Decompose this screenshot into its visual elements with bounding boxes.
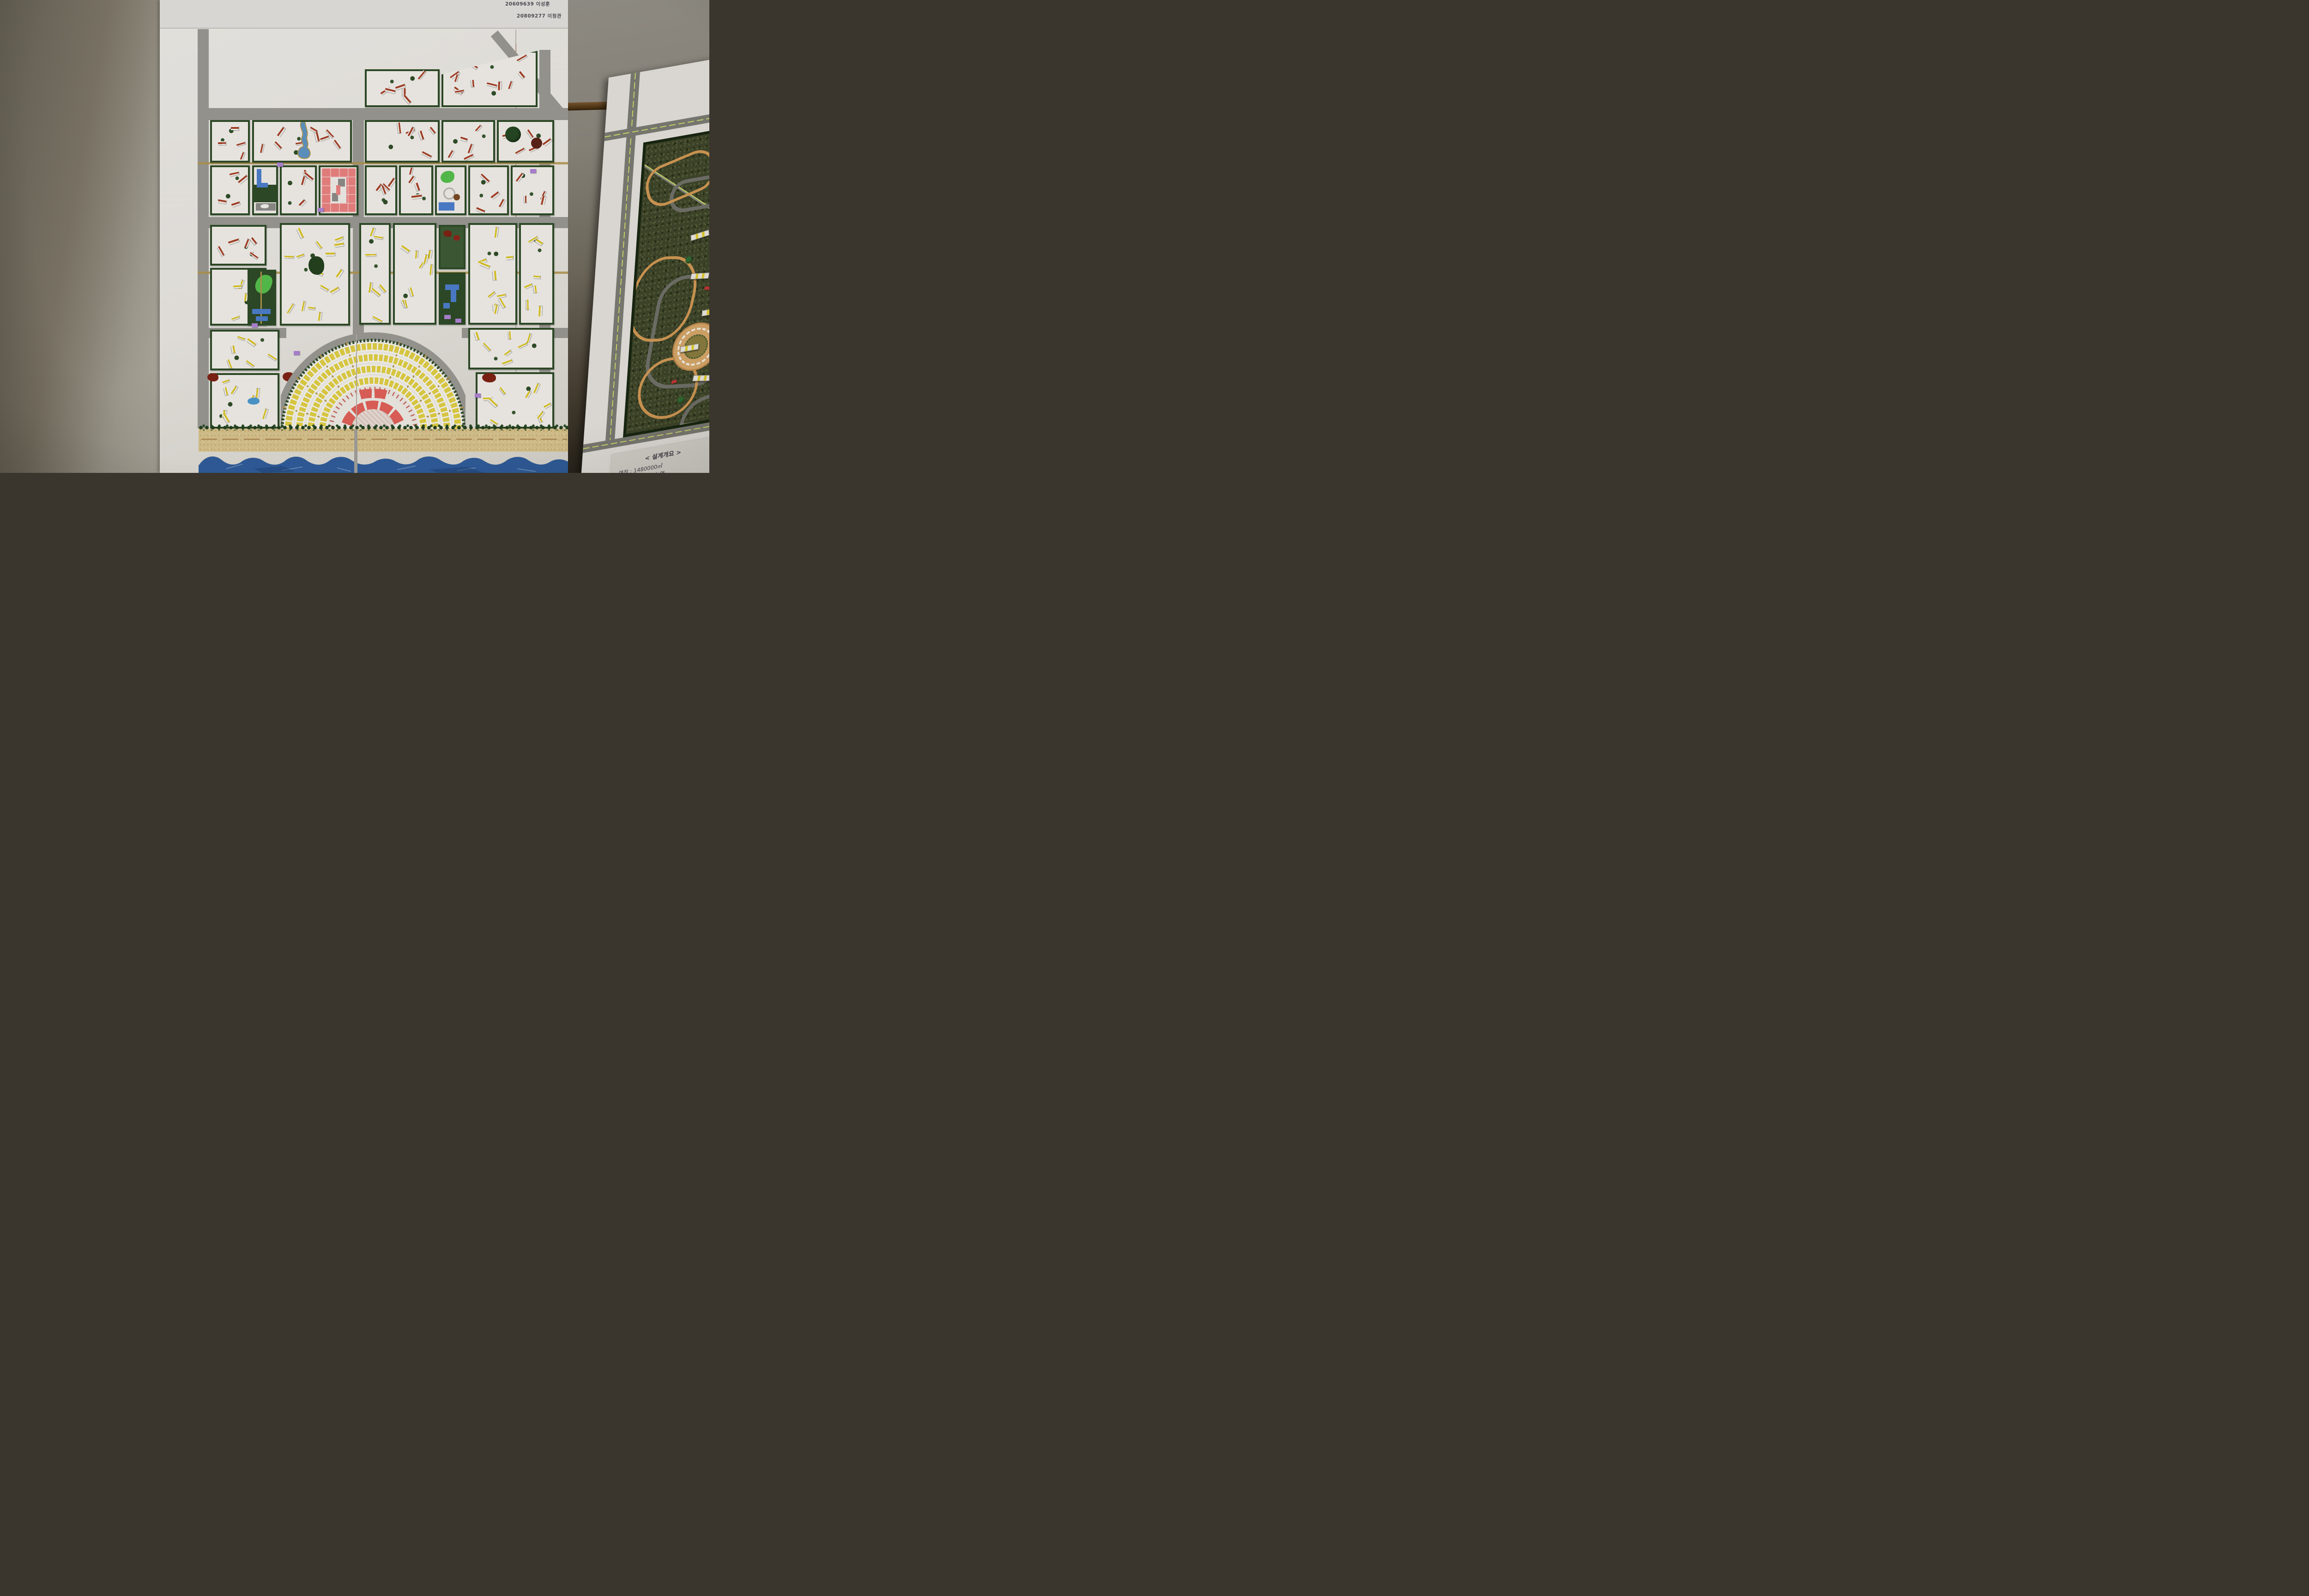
rb-apartment-building: [692, 375, 709, 381]
city-block-res: [468, 328, 554, 369]
model-house-yellow: [400, 244, 411, 253]
maroon-garden: [443, 230, 452, 237]
big-tree: [505, 127, 521, 142]
park-green-blob: [441, 171, 454, 183]
model-house-yellow: [261, 409, 268, 419]
model-house-red: [231, 201, 240, 207]
model-house-red: [487, 81, 498, 87]
purple-building: [444, 315, 451, 319]
model-house-yellow: [227, 359, 233, 369]
fan-red-top-piece-right: [375, 393, 386, 395]
maroon-garden-blob: [207, 373, 218, 381]
model-house-red: [518, 70, 526, 79]
model-house-yellow: [409, 287, 415, 297]
model-house-yellow: [533, 285, 538, 293]
model-house-yellow: [320, 284, 329, 291]
model-house-yellow: [230, 386, 238, 395]
city-block-res: [359, 223, 391, 325]
model-house-red: [415, 182, 421, 191]
city-block-river: [252, 120, 352, 163]
model-house-red: [408, 167, 413, 175]
model-house-yellow: [487, 291, 495, 298]
purple-building: [530, 169, 536, 173]
model-house-red: [397, 122, 402, 133]
courtyard-building-pink: [336, 185, 340, 195]
model-house-yellow: [233, 284, 242, 289]
purple-building: [475, 393, 481, 398]
city-block-slant: [441, 51, 538, 107]
model-house-red: [403, 94, 412, 104]
model-house-yellow: [335, 236, 344, 242]
blue-building: [445, 284, 459, 290]
model-house-yellow: [222, 379, 230, 384]
blue-building: [451, 290, 456, 302]
model-house-yellow: [231, 315, 239, 320]
model-house-yellow: [526, 334, 532, 344]
model-house-yellow: [508, 331, 512, 339]
pink-courtyard: [331, 177, 346, 203]
pond: [248, 398, 260, 405]
model-house-red: [243, 239, 250, 248]
model-house-red: [542, 138, 551, 146]
purple-building: [277, 163, 283, 167]
model-house-red: [471, 80, 475, 87]
model-house-yellow: [335, 269, 343, 278]
city-block-res: [210, 120, 250, 163]
model-house-yellow: [334, 242, 344, 247]
city-block-res: [399, 165, 433, 215]
model-house-yellow: [315, 240, 323, 249]
city-block-res: [468, 165, 509, 215]
model-house-yellow: [493, 271, 497, 280]
model-house-red: [259, 144, 264, 153]
model-house-yellow: [223, 413, 230, 423]
model-house-red: [230, 171, 239, 176]
beach-hedge: [199, 424, 568, 430]
model-house-yellow: [296, 253, 304, 258]
model-house-yellow: [504, 349, 512, 357]
city-block-trees: [497, 120, 554, 163]
whale-motif: [260, 204, 269, 208]
rb-model-area: [623, 116, 709, 438]
rb-tree: [677, 396, 685, 404]
model-house-yellow: [533, 275, 541, 279]
model-house-red: [516, 54, 527, 62]
model-house-red: [417, 70, 426, 80]
model-house-yellow: [317, 313, 322, 321]
city-block-parkE: [439, 225, 465, 269]
beach-sand: [199, 429, 568, 452]
city-block-res: [519, 223, 554, 325]
model-house-red: [490, 191, 499, 199]
purple-building: [318, 208, 324, 212]
rb-apartment-building: [690, 230, 709, 241]
model-house-yellow: [246, 359, 255, 367]
model-house-yellow: [423, 254, 429, 264]
model-house-red: [429, 126, 436, 134]
blue-pool: [439, 202, 454, 211]
city-block-res: [441, 120, 495, 163]
model-house-red: [218, 141, 226, 145]
model-house-yellow: [499, 387, 506, 395]
blue-building: [252, 309, 271, 314]
model-house-yellow: [297, 227, 305, 238]
maroon-garden: [453, 235, 460, 241]
city-block-pink: [319, 165, 358, 215]
beach-tide-line: [201, 439, 567, 440]
model-house-yellow: [284, 254, 294, 258]
model-house-yellow: [371, 287, 381, 297]
model-house-yellow: [286, 303, 295, 314]
rb-apartment-building: [701, 307, 709, 316]
city-block-res: [393, 223, 436, 325]
model-house-red: [419, 130, 425, 139]
model-house-red: [411, 193, 422, 199]
city-block-res: [365, 165, 397, 215]
commercial-pink-complex: [321, 168, 356, 212]
fan-red-top-piece-left: [360, 393, 372, 395]
model-house-yellow: [526, 300, 530, 310]
purple-building: [252, 323, 258, 327]
model-house-yellow: [329, 286, 339, 294]
model-house-red: [236, 141, 246, 147]
model-house-red: [514, 147, 525, 155]
amphitheater-district: [281, 329, 465, 431]
model-house-red: [467, 144, 474, 154]
model-house-red: [480, 173, 490, 183]
model-house-red: [231, 126, 239, 130]
model-house-red: [239, 152, 245, 160]
model-house-red: [218, 199, 226, 204]
city-block-parkC: [248, 270, 276, 326]
model-house-yellow: [308, 306, 315, 310]
model-house-red: [460, 136, 468, 142]
model-house-yellow: [493, 227, 498, 237]
rb-buildings-layer: [626, 118, 709, 438]
model-house-red: [463, 153, 473, 161]
model-house-yellow: [224, 387, 229, 395]
model-house-yellow: [378, 284, 387, 293]
model-house-yellow: [300, 301, 305, 311]
city-block-res: [280, 165, 317, 215]
model-house-yellow: [246, 337, 256, 346]
model-house-red: [526, 129, 534, 138]
city-block-res: [210, 330, 279, 370]
model-house-yellow: [488, 398, 498, 407]
sea-water: [199, 450, 568, 473]
model-house-yellow: [365, 253, 376, 256]
model-house-yellow: [502, 358, 512, 365]
model-house-red: [274, 140, 283, 149]
model-house-yellow: [524, 390, 531, 399]
model-house-red: [407, 175, 415, 184]
model-house-red: [333, 139, 342, 149]
big-tree: [308, 256, 324, 275]
city-block-res: [210, 165, 250, 215]
model-house-yellow: [255, 388, 260, 399]
maroon-garden-blob: [482, 373, 496, 382]
board-hinge: [354, 429, 357, 473]
city-block-parkA: [252, 165, 278, 215]
city-block-res: [365, 69, 440, 107]
city-block-bigtree: [280, 223, 350, 326]
model-house-red: [407, 127, 415, 137]
rb-tree: [685, 256, 693, 264]
model-house-red: [276, 127, 285, 137]
model-house-red: [249, 251, 259, 259]
purple-building: [455, 319, 461, 323]
rb-apartment-building: [680, 344, 699, 353]
model-house-yellow: [543, 402, 551, 409]
model-house-red: [515, 172, 524, 182]
model-house-red: [298, 199, 306, 207]
city-block-pond: [210, 373, 279, 429]
blue-building: [257, 183, 268, 187]
city-block-res: [210, 225, 266, 266]
model-house-yellow: [474, 332, 480, 340]
rb-red-building: [704, 286, 709, 290]
photo-architecture-model-boards: 20609639 이성훈 20809277 이청관: [0, 0, 709, 473]
model-house-red: [498, 199, 505, 208]
model-house-yellow: [536, 411, 544, 420]
model-house-yellow: [506, 255, 514, 260]
model-house-red: [228, 237, 239, 244]
gold-trail: [260, 272, 262, 324]
model-house-yellow: [325, 252, 334, 256]
model-house-red: [474, 124, 482, 132]
model-house-red: [507, 81, 513, 89]
model-house-red: [447, 150, 454, 158]
model-house-red: [469, 62, 478, 69]
park-brown-dot: [453, 194, 460, 200]
city-block-parkD: [439, 272, 465, 325]
park-green-field: [253, 272, 274, 296]
model-house-yellow: [483, 342, 492, 351]
city-block-res: [365, 120, 440, 163]
river-stream: [292, 122, 313, 161]
model-house-red: [237, 175, 248, 184]
rb-red-building: [671, 380, 677, 384]
model-house-yellow: [414, 251, 418, 259]
city-block-parkB: [435, 165, 466, 215]
model-house-yellow: [237, 335, 245, 340]
model-house-yellow: [533, 383, 540, 394]
red-shrub: [531, 138, 542, 149]
model-house-yellow: [524, 282, 532, 289]
model-house-yellow: [374, 235, 383, 239]
model-house-yellow: [518, 342, 528, 349]
model-house-red: [421, 150, 432, 158]
blue-building: [256, 316, 268, 321]
model-house-yellow: [267, 352, 278, 361]
model-house-red: [524, 196, 527, 203]
model-house-yellow: [538, 306, 542, 316]
blue-building: [443, 303, 450, 308]
model-house-yellow: [231, 345, 236, 353]
model-house-yellow: [498, 297, 507, 308]
model-house-red: [497, 82, 501, 91]
model-house-red: [217, 245, 225, 256]
model-house-red: [476, 206, 485, 213]
model-house-yellow: [372, 315, 382, 323]
model-house-yellow: [429, 265, 433, 275]
rb-apartment-building: [690, 272, 709, 279]
city-block-res: [468, 223, 517, 325]
model-house-red: [250, 237, 258, 245]
model-house-red: [300, 176, 306, 186]
